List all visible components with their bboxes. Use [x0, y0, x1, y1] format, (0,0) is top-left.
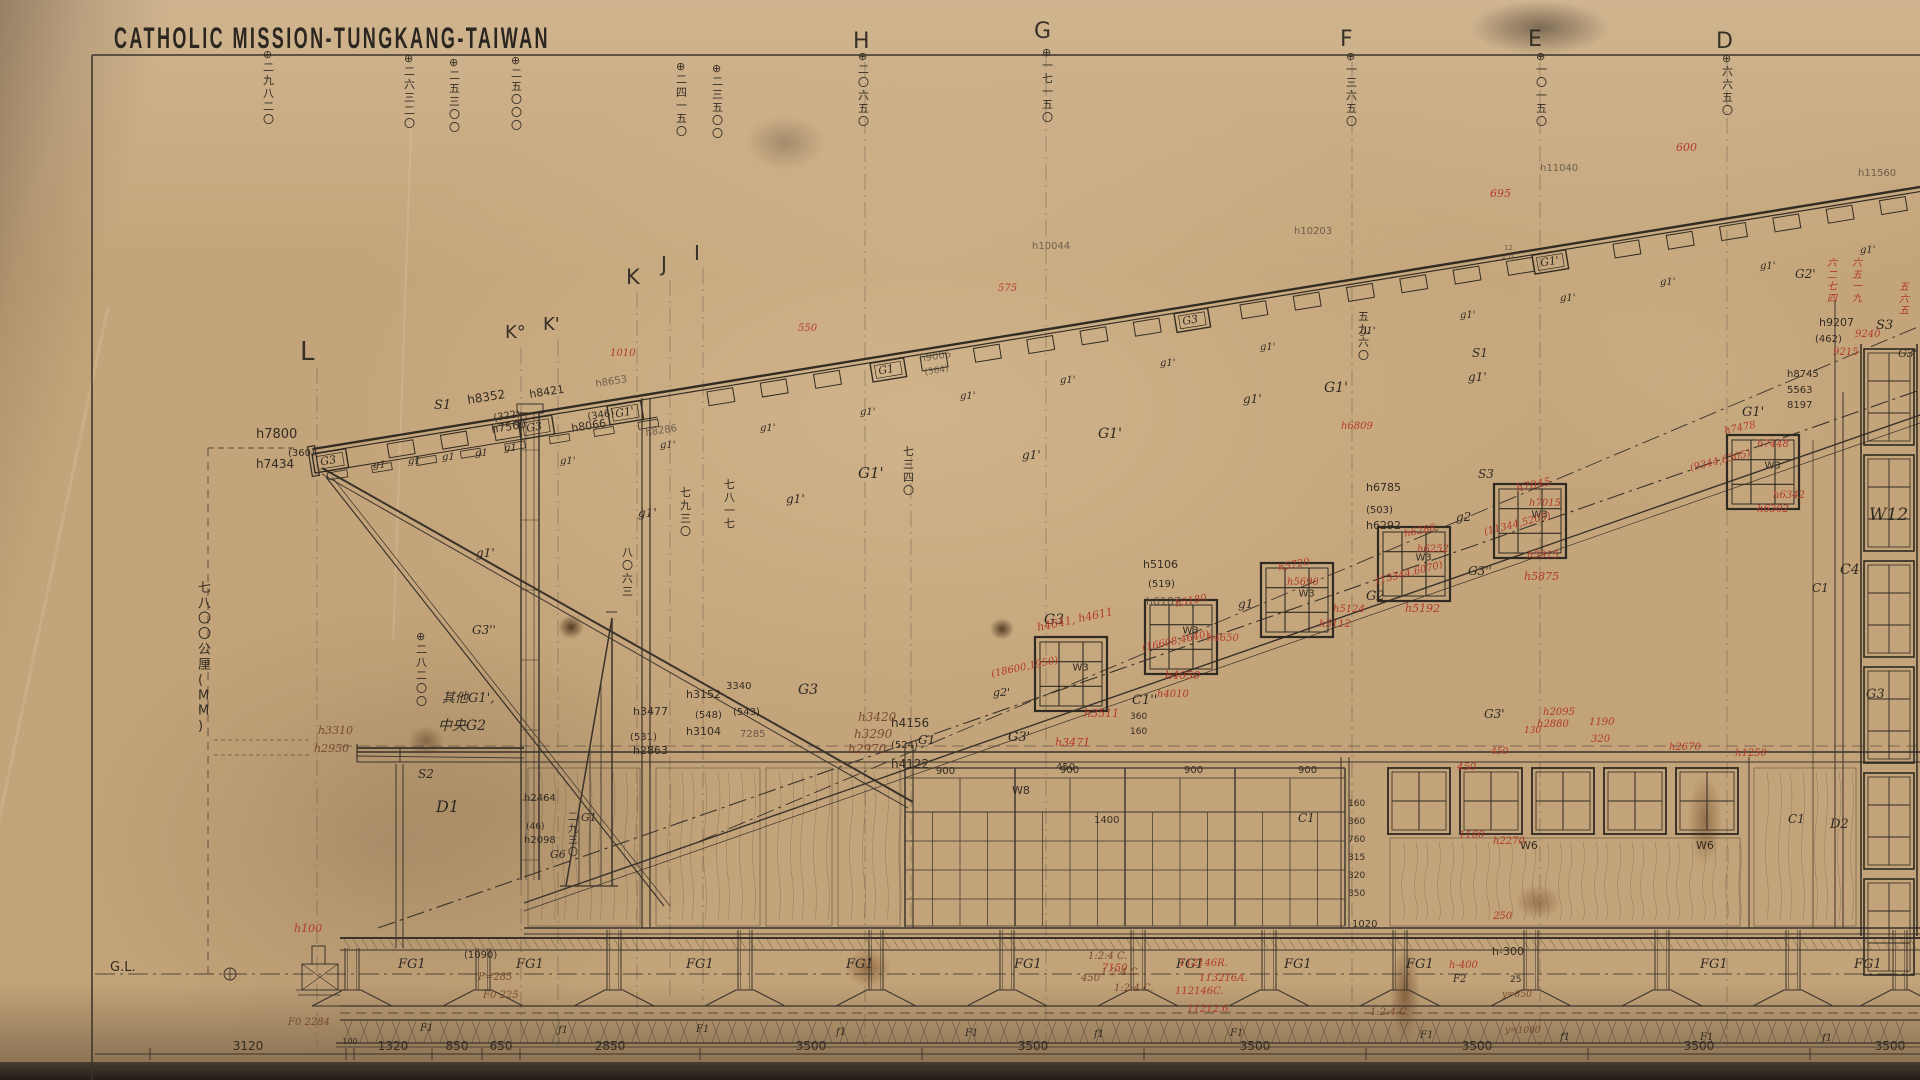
annotation-label: 25 — [1510, 975, 1521, 985]
annotation-label: h2863 — [633, 744, 668, 757]
annotation-label: C1'' — [1132, 693, 1157, 708]
annotation-label: S1 — [1472, 346, 1488, 360]
wood-panel — [766, 768, 832, 926]
footing-label: FG1 — [1853, 957, 1882, 972]
annotation-label: h7015 — [1529, 498, 1561, 509]
annotation-label: g1' — [660, 440, 676, 451]
footing-label: FG1 — [397, 957, 426, 972]
roof-girder-label: G1 — [877, 362, 895, 377]
structure-lines — [95, 300, 1920, 995]
annotation-label: y=1000 — [1504, 1026, 1541, 1036]
annotation-label: 1:2:4 C. — [1088, 951, 1127, 962]
annotation-label: 160 — [1348, 799, 1365, 809]
annotation-label: (462) — [1815, 334, 1842, 345]
annotation-label: h8653 — [595, 374, 628, 390]
annotation-label: g1' — [1060, 375, 1076, 386]
annotation-label: h6785 — [1366, 481, 1401, 494]
annotation-label: h2095 — [1543, 707, 1575, 718]
annotation-label: h2950 — [314, 742, 349, 755]
blueprint-drawing: CATHOLIC MISSION-TUNGKANG-TAIWAN DEFGHIJ… — [0, 0, 1920, 1080]
annotation-label: 五六五 — [1899, 282, 1910, 317]
annotation-label: h3290 — [854, 727, 893, 741]
annotation-label: g1' — [1260, 342, 1276, 353]
annotation-label: g1 — [504, 443, 517, 454]
annotation-label: G3' — [1898, 347, 1917, 360]
annotation-label: 1010 — [610, 348, 636, 359]
footing-mark: F1 — [695, 1024, 709, 1035]
annotation-label: h-400 — [1449, 960, 1479, 971]
annotation-label: g1 — [442, 452, 455, 463]
annotation-label: G3 — [798, 682, 818, 698]
annotation-label: 113216A. — [1199, 973, 1248, 984]
annotation-label: g1' — [638, 506, 657, 520]
dimension-label: 3120 — [233, 1039, 264, 1053]
annotation-label: g1' — [1860, 245, 1876, 256]
annotation-label: h11560 — [1858, 168, 1896, 179]
annotation-label: 320 — [1591, 734, 1611, 745]
annotation-label: (9344,6305) — [1689, 448, 1752, 474]
annotation-label: 900 — [936, 766, 955, 777]
annotation-label: 1190 — [1589, 717, 1615, 728]
annotation-label: h6292 — [1366, 519, 1401, 532]
dimension-label: 2850 — [595, 1039, 626, 1053]
window-w12-stack: W12 — [1861, 344, 1917, 975]
annotation-label: G3'' — [1468, 564, 1492, 578]
footing-mark: f1 — [1093, 1029, 1104, 1040]
grid-letter: K' — [543, 314, 560, 335]
window-w6 — [1532, 768, 1594, 834]
annotation-label: h5112 — [1319, 619, 1351, 630]
window-w6 — [1460, 768, 1522, 834]
annotation-label: h2098 — [524, 835, 556, 846]
annotation-label: 2.0 — [1502, 253, 1513, 261]
annotation-label: h5875 — [1524, 570, 1559, 583]
annotation-label: h4650 — [1207, 633, 1240, 644]
wood-panel — [1390, 838, 1742, 926]
annotation-label: h7800 — [256, 427, 297, 442]
footing-label: FG1 — [845, 957, 874, 972]
annotation-label: 450 — [1056, 762, 1075, 773]
annotation-label: 其他G1', — [442, 691, 494, 706]
footing-label: FG1 — [685, 957, 714, 972]
annotation-label: D1 — [435, 797, 459, 816]
annotation-label: S3 — [1478, 467, 1494, 481]
annotation-label: h3511 — [1084, 707, 1119, 720]
footing-mark: f1 — [835, 1027, 846, 1038]
grid-letter: F — [1340, 27, 1353, 52]
dimension-label: 650 — [490, 1039, 513, 1053]
footing-label: FG1 — [1405, 957, 1434, 972]
annotation-label: h2670 — [1669, 742, 1702, 753]
annotation-label: g1' — [1360, 326, 1376, 337]
annotation-label: S2 — [418, 767, 434, 781]
annotation-label: 760 — [1348, 835, 1365, 845]
annotation-label: g1' — [476, 546, 495, 560]
annotation-label: 12 — [1504, 244, 1513, 252]
roof-girder-label: G3 — [319, 453, 337, 468]
station-label: ⊕二五三〇〇 — [449, 56, 460, 134]
annotation-label: G1 — [581, 811, 597, 824]
station-label: ⊕一七一五〇 — [1042, 46, 1053, 124]
annotation-label: h4641, h4611 — [1036, 605, 1114, 634]
annotation-label: G3 — [1866, 687, 1885, 702]
annotation-label: 六五一九 — [1852, 257, 1863, 304]
footing-pedestal — [1753, 930, 1833, 1006]
annotation-label: g1' — [1560, 293, 1576, 304]
wood-grain-panels — [528, 768, 1856, 926]
annotation-label: ⊕二八二〇〇 — [416, 630, 427, 708]
annotation-label: G.L. — [110, 960, 136, 975]
annotation-label: G2 — [1366, 589, 1385, 604]
annotation-label: (524) — [891, 740, 918, 751]
annotation-label: C1 — [1812, 581, 1829, 595]
annotation-label: h3471 — [1055, 736, 1090, 749]
dimension-label: 3500 — [1684, 1039, 1715, 1053]
wood-panel — [838, 768, 902, 926]
annotation-label: h4050 — [1165, 669, 1200, 682]
annotation-label: h2880 — [1537, 719, 1570, 730]
annotation-label: 七八一七 — [724, 478, 735, 530]
annotation-label: h4122 — [891, 757, 929, 771]
annotation-label: h7448 — [1757, 439, 1789, 450]
annotation-label: 900 — [1184, 765, 1203, 776]
roof-girder-label: G3 — [1181, 312, 1199, 327]
annotation-label: 二九三〇 — [568, 812, 578, 858]
annotation-label: 315 — [1348, 853, 1365, 863]
annotation-label: h3477 — [633, 705, 668, 718]
annotation-label: 350 — [1348, 889, 1365, 899]
dimension-label: 3500 — [1875, 1039, 1906, 1053]
annotation-label: g1 — [373, 460, 386, 471]
annotation-label: h6342 — [1773, 490, 1805, 501]
station-label: ⊕二三五〇〇 — [712, 62, 723, 140]
dimension-label: 3500 — [1018, 1039, 1049, 1053]
annotation-label: 130 — [1524, 726, 1541, 736]
annotation-label: (543) — [733, 707, 760, 718]
annotation-label: 七三四〇 — [903, 445, 914, 497]
annotation-label: 160 — [1130, 727, 1147, 737]
station-label: ⊕二四一五〇 — [676, 60, 687, 138]
annotation-label: 450 — [1490, 747, 1508, 757]
annotation-label: g1' — [1243, 392, 1262, 406]
annotation-label: G1 — [918, 733, 935, 747]
annotation-label: h7045 — [1515, 475, 1552, 495]
annotation-label: g1' — [1660, 277, 1676, 288]
annotation-label: g1 — [475, 448, 488, 459]
annotation-label: 9215 — [1833, 347, 1858, 358]
annotation-label: 450 — [1080, 973, 1101, 984]
annotation-label: h2270 — [1493, 836, 1526, 847]
footing-label: FG1 — [1699, 957, 1728, 972]
annotation-label: G3'' — [472, 623, 496, 637]
annotation-label: (46) — [526, 822, 544, 832]
annotation-label: g1' — [760, 423, 776, 434]
annotation-label: g1' — [1760, 261, 1776, 272]
annotation-label: y=850 — [1501, 990, 1532, 1000]
station-label: ⊕二六三二〇 — [404, 52, 415, 130]
annotation-label: g1' — [1460, 310, 1476, 321]
footing-mark: f1 — [1821, 1033, 1832, 1044]
annotation-label: h3420 — [858, 710, 897, 724]
annotation-label: 9240 — [1855, 329, 1881, 340]
drawing-title: CATHOLIC MISSION-TUNGKANG-TAIWAN — [114, 22, 550, 55]
footing-pedestal — [705, 930, 785, 1006]
station-label: ⊕二九八二〇 — [263, 48, 274, 126]
annotation-label: 550 — [798, 323, 818, 334]
annotation-label: F0 225 — [482, 990, 519, 1001]
window-w6 — [1388, 768, 1450, 834]
annotation-label: h8352 — [466, 387, 506, 407]
annotation-label: S1 — [434, 398, 451, 413]
grid-letter: K° — [505, 322, 526, 343]
annotation-label: D2 — [1829, 817, 1849, 832]
footing-pedestal — [312, 948, 392, 1006]
annotation-label: g1 — [408, 456, 421, 467]
roof-girder-label: G1' — [1539, 254, 1560, 270]
annotation-label: g1 — [1238, 597, 1253, 611]
annotation-label: 11212.6. — [1187, 1004, 1232, 1015]
annotation-label: h3104 — [686, 725, 721, 738]
grid-letter: J — [659, 252, 667, 276]
annotations-layer: h7800(360)h7434h8352(322)h7560h8421h8653… — [110, 141, 1917, 1036]
annotation-label: 3340 — [726, 681, 751, 692]
footing-label: FG1 — [1013, 957, 1042, 972]
station-label: ⊕二五〇〇〇 — [511, 54, 522, 132]
annotation-label: g2 — [1456, 510, 1471, 524]
annotation-label: h4010 — [1157, 689, 1190, 700]
annotation-label: (503) — [1366, 505, 1393, 516]
dimension-label: 3500 — [1462, 1039, 1493, 1053]
annotation-label: (364) — [924, 364, 949, 378]
annotation-label: 1020 — [1352, 919, 1377, 930]
annotation-label: 600 — [1676, 141, 1697, 154]
annotation-label: g1' — [560, 456, 576, 467]
annotation-label: 1100 — [1459, 830, 1485, 841]
annotation-label: F2 — [1452, 974, 1466, 985]
annotation-label: h-300 — [1492, 945, 1524, 958]
annotation-label: 575 — [998, 283, 1017, 294]
cabinet-grid — [905, 768, 1345, 926]
annotation-label: 250 — [1492, 911, 1513, 922]
annotation-label: h11040 — [1540, 163, 1578, 174]
annotation-label: h6252 — [1417, 544, 1449, 555]
annotation-label: 七八〇〇公厘(MM) — [198, 581, 211, 734]
station-label: ⊕一〇一五〇 — [1536, 50, 1547, 128]
annotation-label: (531) — [630, 732, 657, 743]
grid-letter: I — [694, 241, 700, 265]
dimension-label: 100 — [342, 1037, 357, 1046]
annotation-label: 320 — [1348, 871, 1365, 881]
footing-mark: f1 — [1559, 1032, 1570, 1043]
footing-pedestal — [574, 930, 654, 1006]
annotation-label: h8421 — [528, 383, 565, 401]
annotation-label: G1' — [1742, 405, 1764, 420]
window-w6 — [1604, 768, 1666, 834]
annotation-label: h8745 — [1787, 369, 1819, 380]
annotation-label: 7150 — [1102, 963, 1128, 974]
annotation-label: h9207 — [1819, 316, 1854, 329]
annotation-label: W6 — [1696, 839, 1714, 852]
annotation-label: h5192 — [1405, 602, 1440, 615]
window-w6 — [1676, 768, 1738, 834]
annotation-label: F0 2284 — [287, 1017, 330, 1028]
annotation-label: (18600,1950) — [990, 655, 1059, 680]
footing-label: FG1 — [1283, 957, 1312, 972]
annotation-label: g1' — [1022, 448, 1041, 462]
annotation-label: 450 — [1456, 762, 1477, 773]
annotation-label: h5915 — [1527, 550, 1559, 561]
isolated-footing — [296, 946, 342, 995]
window-label: W3 — [1764, 460, 1780, 471]
footing-mark: F1 — [419, 1023, 433, 1034]
annotation-label: h5690 — [1287, 577, 1320, 588]
annotation-label: (1090) — [464, 950, 497, 961]
annotation-label: G1' — [858, 464, 884, 482]
annotation-label: h5124 — [1333, 604, 1365, 615]
annotation-label: 5563 — [1787, 385, 1812, 396]
station-label: ⊕二〇六五〇 — [858, 50, 869, 128]
station-label: ⊕六六五〇 — [1722, 52, 1733, 117]
annotation-label: h6809 — [1341, 421, 1374, 432]
annotation-label: 1400 — [1094, 815, 1119, 826]
annotation-label: 7285 — [740, 729, 765, 740]
annotation-label: G1' — [1324, 380, 1348, 396]
grid-letter: K — [626, 265, 641, 289]
annotation-label: G3' — [1484, 707, 1505, 721]
station-label: ⊕一三六五〇 — [1346, 50, 1357, 128]
footing-mark: F1 — [964, 1028, 978, 1039]
annotation-label: G1' — [1098, 426, 1122, 442]
annotation-label: W8 — [1012, 784, 1030, 797]
annotation-label: 900 — [1298, 765, 1317, 776]
annotation-label: (519) — [1148, 579, 1175, 590]
annotation-label: 695 — [1490, 187, 1511, 200]
window-label: W3 — [1298, 588, 1314, 599]
annotation-label: h8066 — [570, 417, 607, 435]
annotation-label: G2' — [1795, 267, 1816, 281]
annotation-label: 中央G2 — [438, 718, 486, 734]
annotation-label: C1 — [1788, 812, 1805, 826]
annotation-label: h3152 — [686, 688, 721, 701]
annotation-label: G6 — [550, 848, 566, 861]
annotation-label: G3' — [1008, 730, 1030, 745]
grid-letter: E — [1528, 27, 1542, 52]
wood-panel — [1754, 768, 1856, 926]
annotation-label: h10044 — [1032, 241, 1070, 252]
footing-pedestal — [1622, 930, 1702, 1006]
dimension-label: 3500 — [1240, 1039, 1271, 1053]
grid-letter: L — [300, 337, 315, 367]
dimension-label: 3500 — [796, 1039, 827, 1053]
annotation-label: g1' — [960, 391, 976, 402]
grid-letter: G — [1034, 19, 1051, 44]
footing-label: FG1 — [515, 957, 544, 972]
annotation-label: g1' — [786, 492, 805, 506]
annotation-label: g1' — [1468, 370, 1487, 384]
dimension-label: 1320 — [378, 1039, 409, 1053]
footing-mark: f1 — [557, 1025, 568, 1036]
annotation-label: 112146C. — [1175, 986, 1224, 997]
dimension-label: 850 — [446, 1039, 469, 1053]
annotation-label: 1:2:4 C. — [1370, 1007, 1409, 1018]
annotation-label: (548) — [695, 710, 722, 721]
annotation-label: g2' — [993, 686, 1010, 699]
annotation-label: h5720 — [1277, 556, 1311, 574]
annotation-label: 七九三〇 — [680, 486, 691, 538]
window-label: W3 — [1072, 662, 1088, 673]
annotation-label: 360 — [1348, 817, 1365, 827]
footing-mark: F1 — [1419, 1030, 1433, 1041]
annotation-label: 1:2:4 C. — [1114, 983, 1153, 994]
annotation-label: h2464 — [524, 793, 556, 804]
annotation-label: 8197 — [1787, 400, 1812, 411]
annotation-label: h3310 — [318, 724, 353, 737]
annotation-label: h5106 — [1143, 558, 1178, 571]
annotation-label: h2970 — [848, 742, 887, 756]
roof-girder-label: G3 — [525, 419, 543, 434]
annotation-label: 360 — [1130, 712, 1147, 722]
grid-letter: D — [1716, 29, 1733, 54]
annotation-label: C4 — [1840, 562, 1860, 578]
annotation-label: h6302 — [1757, 504, 1789, 515]
annotation-label: (13344,6070) — [1375, 560, 1444, 587]
annotation-label: h1250 — [1735, 748, 1768, 759]
annotation-label: 八〇六三 — [622, 546, 633, 598]
annotation-label: h4156 — [891, 716, 929, 730]
annotation-label: h7434 — [256, 457, 294, 471]
footing-mark: F1 — [1229, 1028, 1243, 1039]
annotation-label: h100 — [294, 922, 322, 935]
annotation-label: 六二七四 — [1827, 257, 1838, 304]
annotation-label: g1' — [1160, 358, 1176, 369]
roof-girder-label: G1' — [614, 404, 635, 420]
annotation-label: F=285 — [477, 972, 512, 983]
window-label: W12 — [1869, 505, 1908, 525]
annotation-label: 112146R. — [1179, 958, 1228, 969]
tall-window-w2 — [517, 404, 543, 880]
annotation-label: g1' — [860, 407, 876, 418]
annotation-label: C1 — [1298, 811, 1315, 825]
annotation-label: h10203 — [1294, 226, 1332, 237]
